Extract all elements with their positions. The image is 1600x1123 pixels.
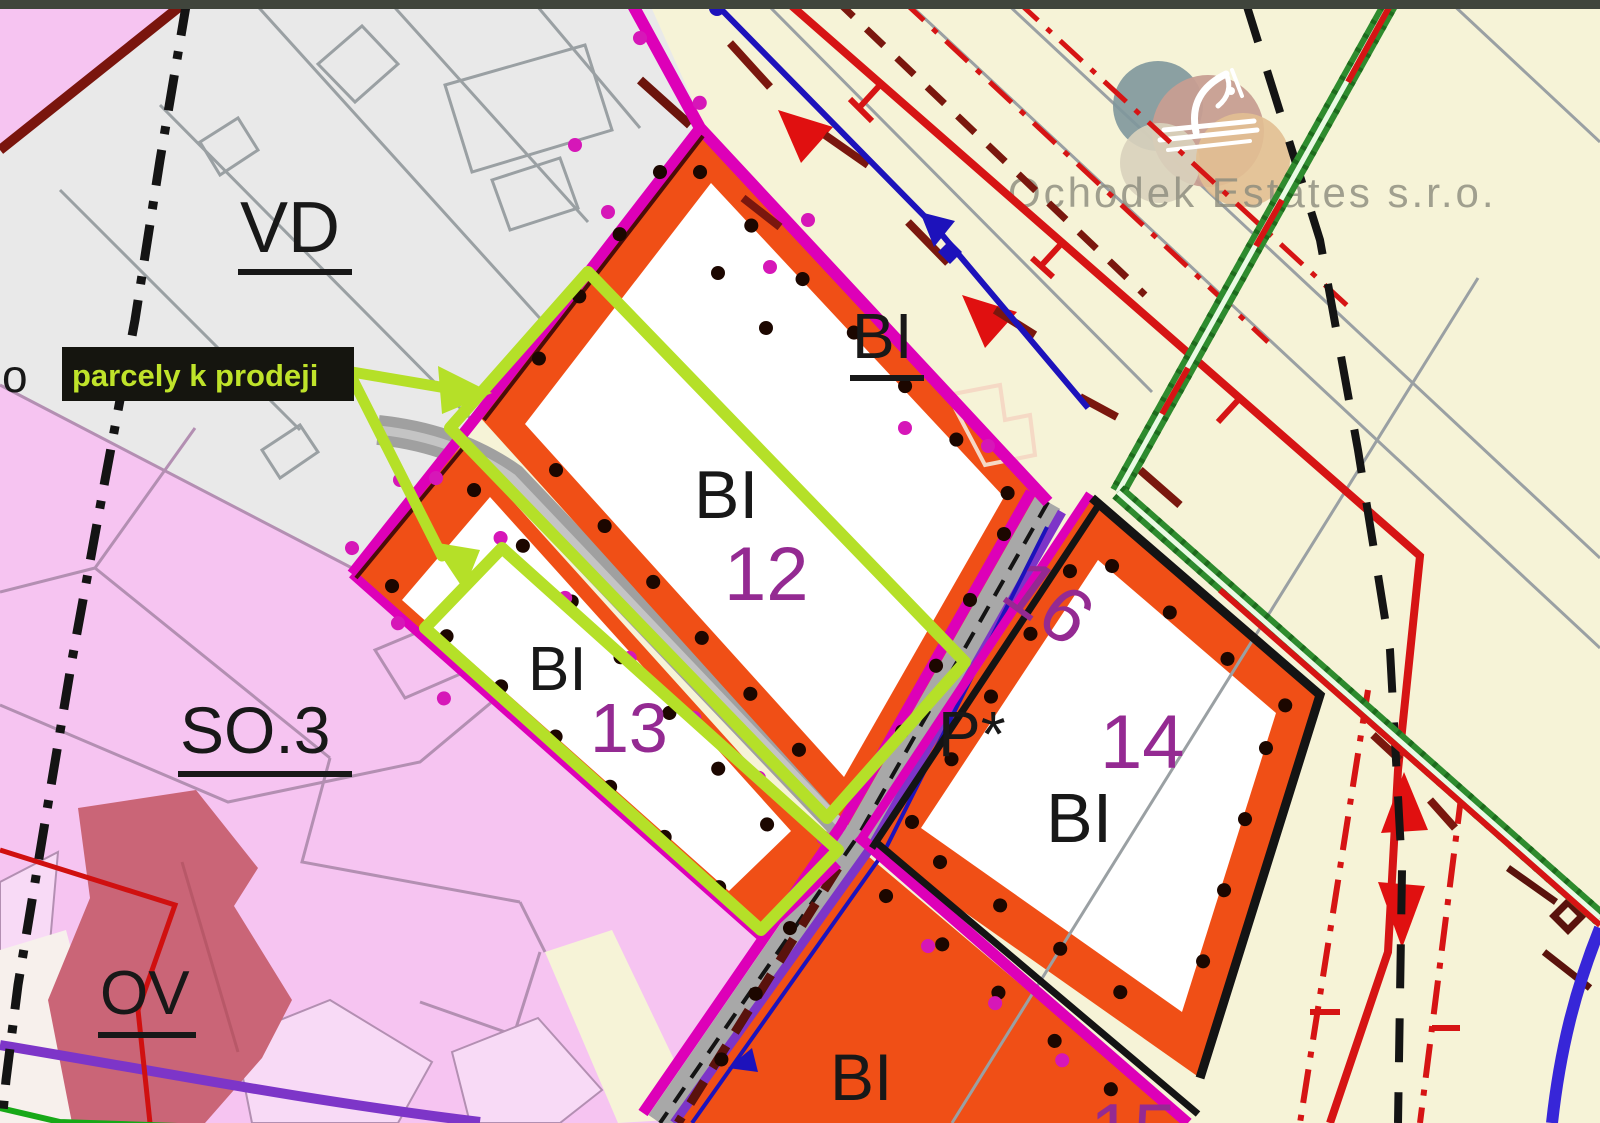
sale-annotation-text: parcely k prodeji (72, 358, 318, 393)
top-edge-strip (0, 0, 1600, 9)
label-bi15-num: 15 (1090, 1087, 1177, 1123)
label-edge-o: o (2, 350, 28, 402)
label-so3: SO.3 (180, 693, 330, 767)
label-bi12-code: BI (694, 457, 758, 533)
label-vd: VD (240, 188, 340, 268)
map-canvas[interactable]: Ochodek Estates s.r.o. (0, 0, 1600, 1123)
label-bi15-code: BI (830, 1040, 892, 1114)
label-bi13-code: BI (528, 635, 587, 704)
label-p-star: P* (938, 698, 1006, 770)
label-bi-top: BI (852, 300, 912, 372)
sale-annotation-label: parcely k prodeji (62, 347, 354, 401)
label-bi12-num: 12 (724, 532, 809, 617)
label-bi13-num: 13 (590, 689, 668, 767)
label-bi14-num: 14 (1100, 700, 1185, 785)
label-ov: OV (100, 959, 190, 1028)
label-bi14-code: BI (1046, 779, 1112, 857)
watermark-text: Ochodek Estates s.r.o. (1008, 169, 1497, 216)
